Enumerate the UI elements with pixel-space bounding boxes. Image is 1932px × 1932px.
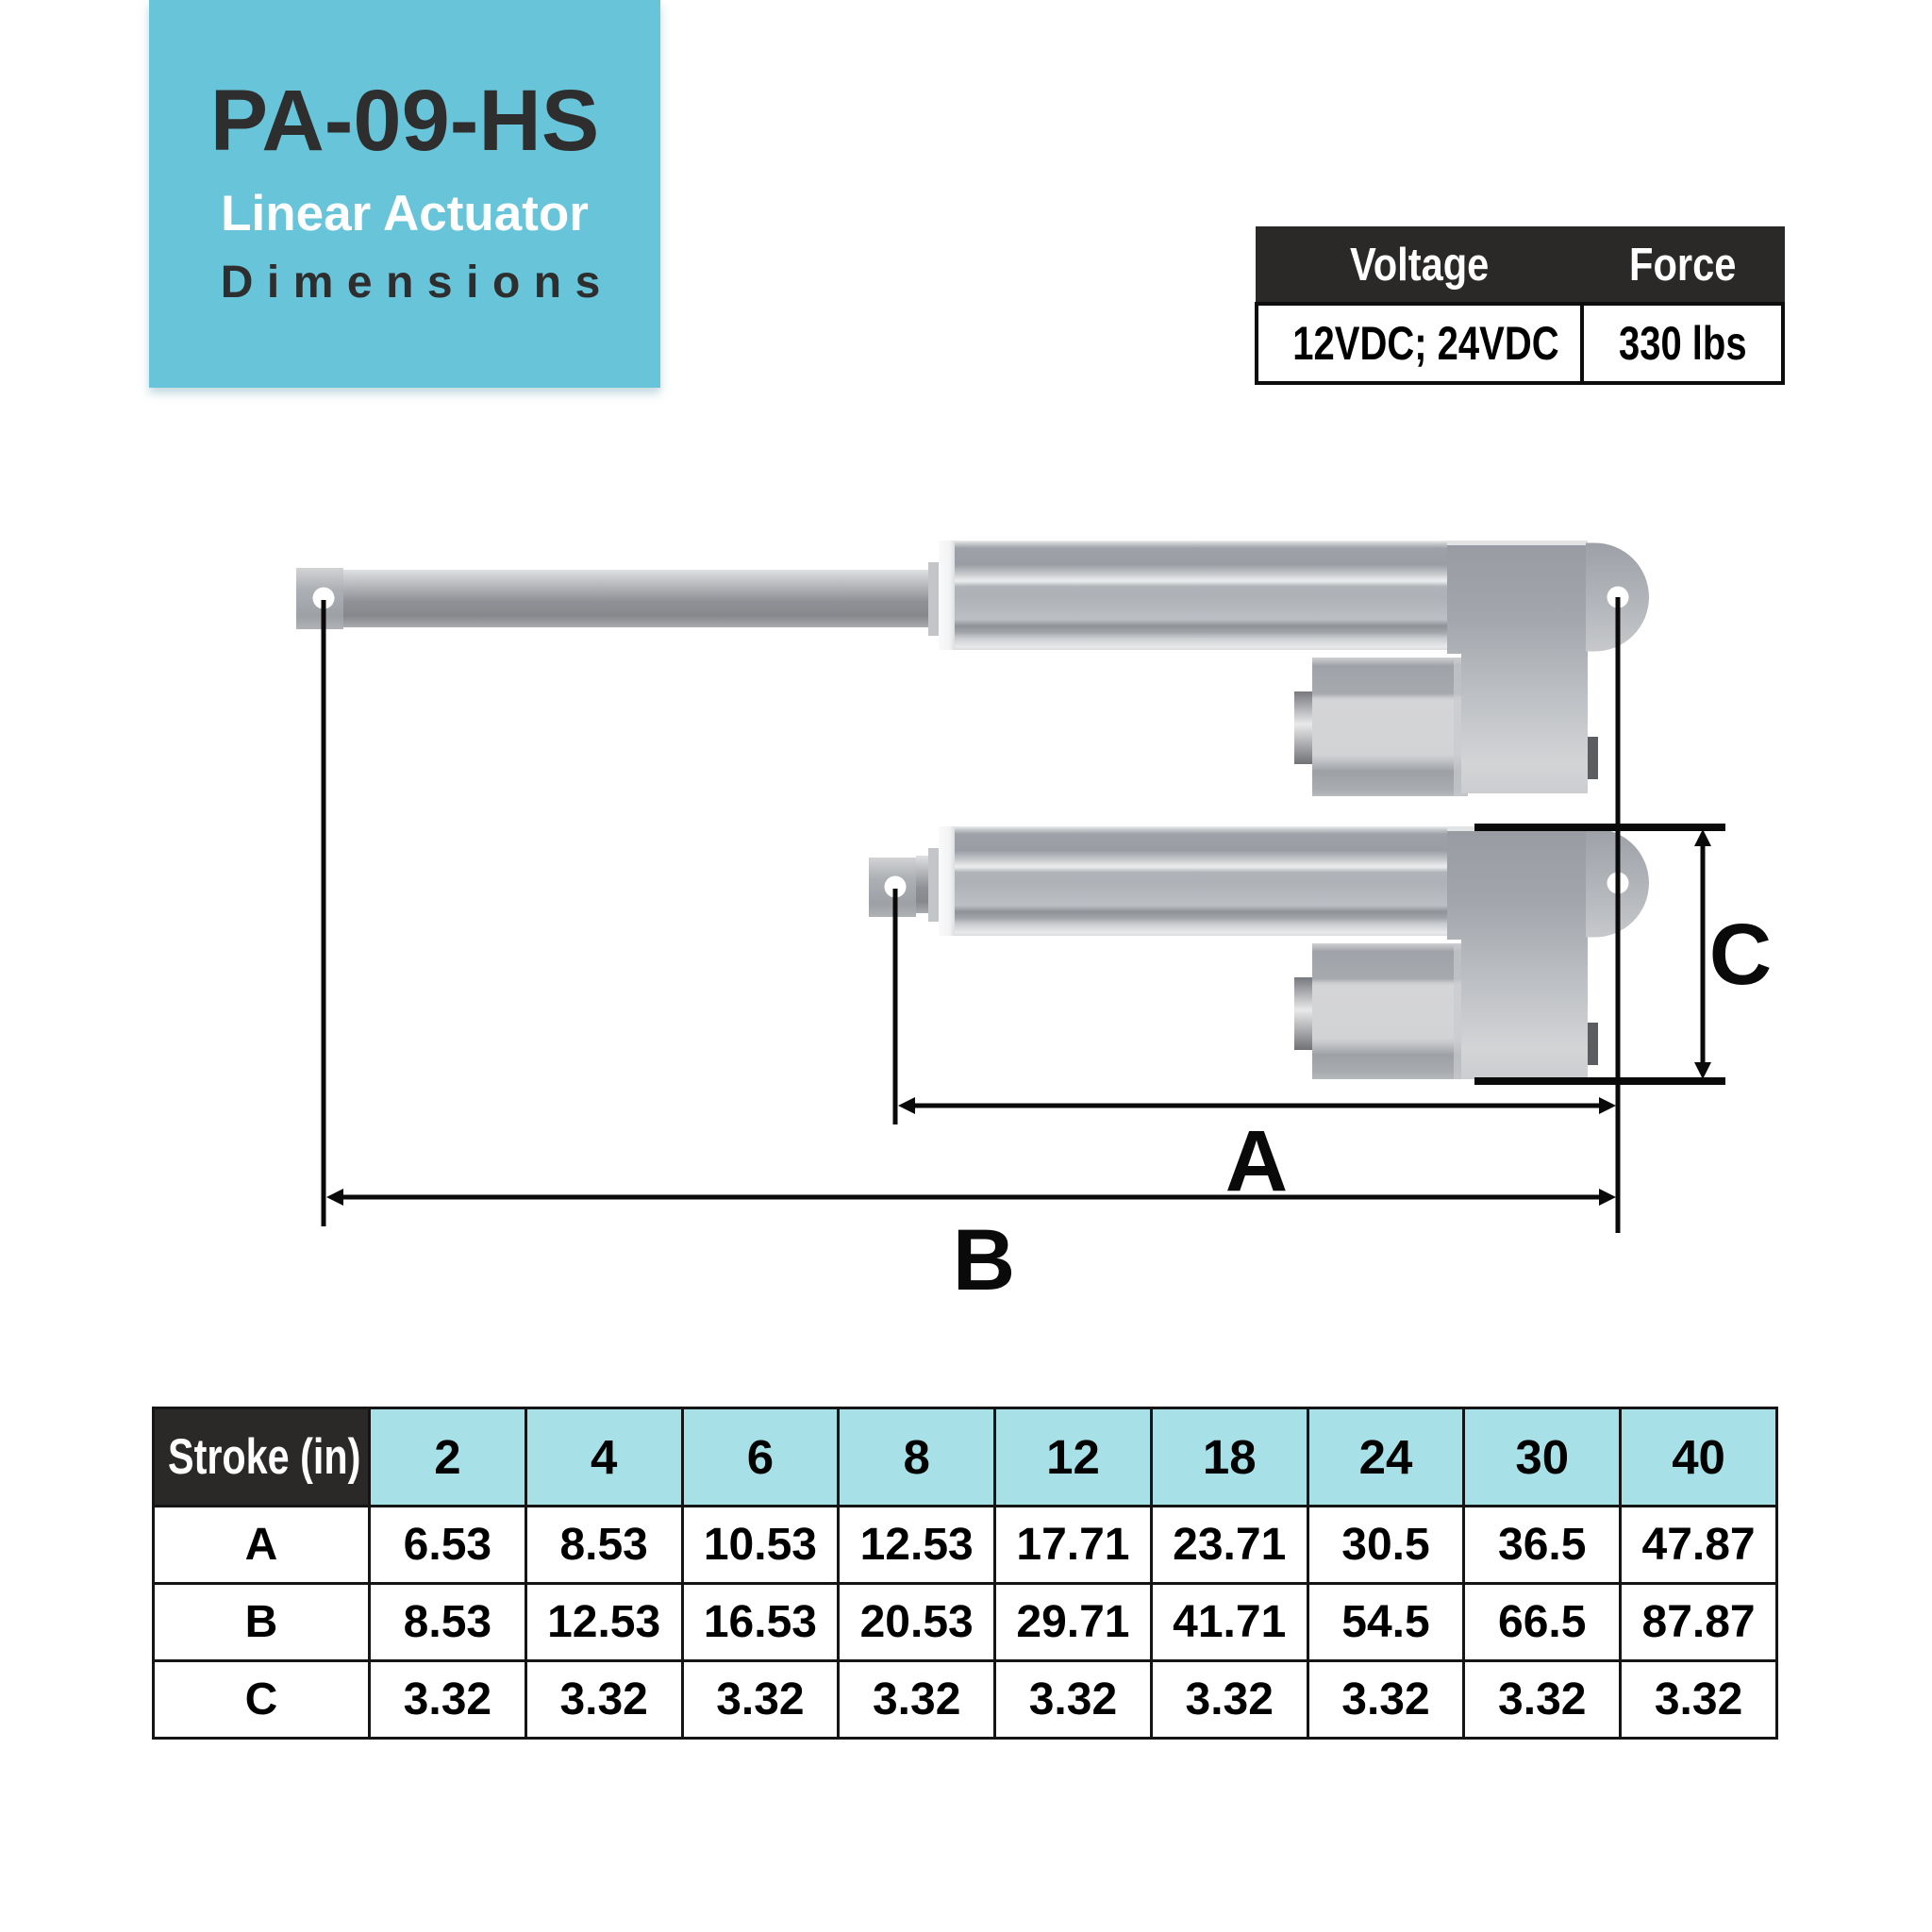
svg-text:A: A — [1225, 1113, 1288, 1209]
svg-text:C: C — [1709, 907, 1772, 1003]
svg-text:B: B — [953, 1212, 1015, 1308]
